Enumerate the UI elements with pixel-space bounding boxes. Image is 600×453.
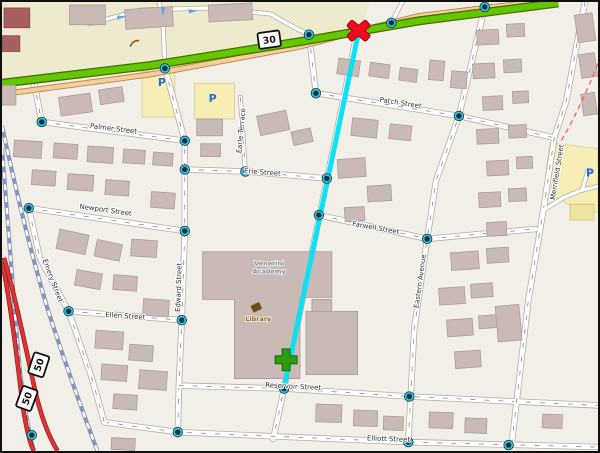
building xyxy=(439,287,466,306)
parking-icon: P xyxy=(158,76,166,89)
building xyxy=(257,110,290,136)
building xyxy=(581,92,598,116)
parking-icon: P xyxy=(209,92,217,105)
building xyxy=(70,5,106,25)
building xyxy=(486,222,507,237)
building xyxy=(316,404,342,423)
building xyxy=(470,283,493,298)
building xyxy=(570,204,594,220)
building xyxy=(353,410,377,427)
building xyxy=(351,118,379,138)
parking-icon: P xyxy=(586,166,594,179)
school-label: Venerini xyxy=(254,260,284,268)
building xyxy=(67,174,94,192)
building xyxy=(516,156,532,169)
building xyxy=(291,128,313,146)
library-label: Library xyxy=(245,315,272,323)
building xyxy=(476,29,499,45)
building xyxy=(113,394,138,410)
building xyxy=(495,304,522,342)
building xyxy=(399,67,419,82)
building xyxy=(482,96,503,111)
building xyxy=(312,299,332,311)
route-shield: 30 xyxy=(257,30,281,49)
building xyxy=(98,87,124,105)
building xyxy=(111,438,135,451)
street-label: Ellen Street xyxy=(105,311,146,322)
building xyxy=(197,119,223,136)
building xyxy=(58,93,92,116)
building xyxy=(503,59,522,73)
building xyxy=(454,350,481,369)
building xyxy=(13,140,42,159)
building xyxy=(465,418,487,434)
building xyxy=(369,62,391,79)
building xyxy=(508,124,527,138)
building xyxy=(2,85,16,105)
building xyxy=(123,149,146,164)
building xyxy=(56,229,89,255)
building xyxy=(542,414,562,429)
building xyxy=(87,146,114,164)
school-label: Academy xyxy=(253,268,287,276)
building xyxy=(74,269,102,289)
building xyxy=(105,180,130,196)
route-shield-number: 30 xyxy=(262,34,277,47)
building xyxy=(428,60,445,81)
building xyxy=(95,330,124,350)
building xyxy=(450,251,479,271)
building xyxy=(153,152,174,166)
building xyxy=(150,191,175,208)
building xyxy=(574,13,596,43)
building xyxy=(383,416,403,431)
building xyxy=(53,143,78,159)
building xyxy=(486,247,509,263)
street-label: Farwell Street xyxy=(352,220,401,236)
route-shield: 50 xyxy=(28,352,50,378)
building xyxy=(125,6,174,29)
building xyxy=(478,192,501,208)
building xyxy=(129,344,154,361)
building xyxy=(472,63,495,79)
map-viewport[interactable]: Palmer StreetPatch StreetErie StreetEarl… xyxy=(0,0,600,453)
building xyxy=(579,53,598,79)
building xyxy=(4,8,30,28)
street-merrifield xyxy=(512,2,586,445)
building xyxy=(476,128,499,144)
building xyxy=(131,239,158,258)
building xyxy=(208,3,253,22)
building xyxy=(367,185,392,202)
building xyxy=(506,23,525,37)
building xyxy=(337,158,366,179)
building xyxy=(306,311,358,374)
highway50-layer xyxy=(2,258,58,451)
street-label: Erie Street xyxy=(244,167,282,178)
building xyxy=(512,91,528,104)
building xyxy=(201,144,221,157)
street-label: Eastern Avenue xyxy=(412,254,428,309)
building xyxy=(101,364,128,382)
building xyxy=(429,412,453,429)
building xyxy=(2,36,20,52)
building xyxy=(142,298,169,317)
building xyxy=(450,71,467,89)
building xyxy=(113,275,138,291)
map-canvas[interactable]: Palmer StreetPatch StreetErie StreetEarl… xyxy=(2,2,598,451)
street-label: Elliott Street xyxy=(367,434,411,443)
building xyxy=(94,239,123,261)
highway-50-road xyxy=(4,258,58,451)
building xyxy=(508,188,527,202)
building xyxy=(138,370,167,391)
building xyxy=(486,160,509,176)
building xyxy=(446,318,473,337)
building xyxy=(31,170,56,186)
building xyxy=(389,124,412,141)
